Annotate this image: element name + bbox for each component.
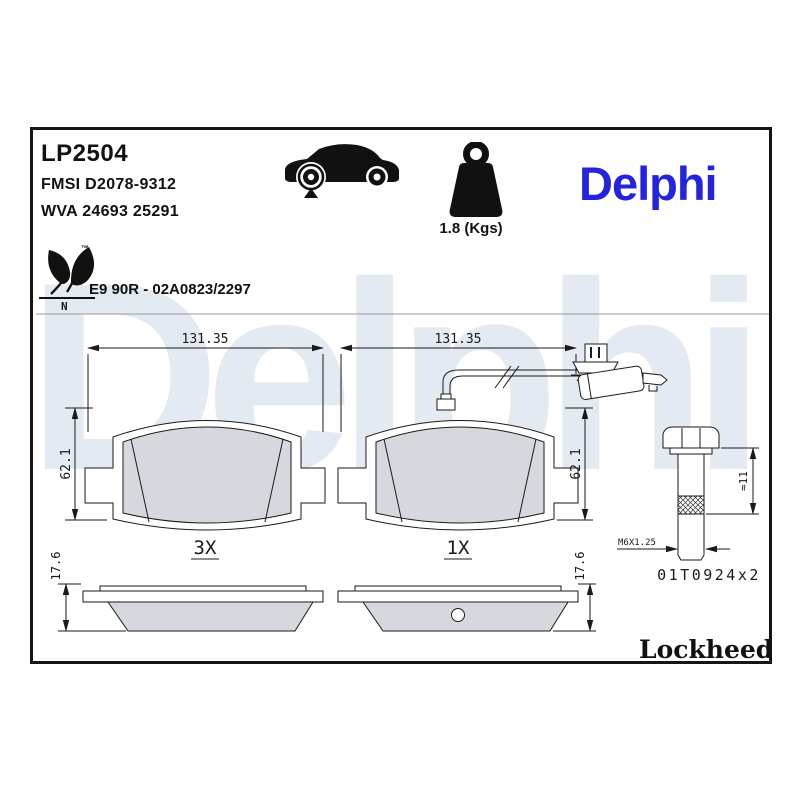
wva-reference: WVA 24693 25291 bbox=[41, 203, 179, 221]
datasheet-page: Delphi LP2504 FMSI D2078-9312 WVA 24693 … bbox=[0, 0, 800, 800]
pad1-width-dim: 131.35 bbox=[182, 332, 229, 347]
bolt-ref-number: 01T0924x2 bbox=[657, 566, 761, 584]
weight-icon bbox=[439, 142, 513, 220]
pad1-height-dim: 62.1 bbox=[59, 448, 74, 479]
eco-mark: N bbox=[61, 300, 68, 312]
pad2-height-dim: 62.1 bbox=[569, 448, 584, 479]
wear-sensor bbox=[437, 344, 667, 410]
bolt-length-dim: ≈11 bbox=[737, 471, 750, 491]
main-border-box: Delphi LP2504 FMSI D2078-9312 WVA 24693 … bbox=[30, 127, 772, 664]
part-number: LP2504 bbox=[41, 140, 128, 168]
eco-leaf-icon: N bbox=[37, 242, 99, 312]
weight-value: 1.8 (Kgs) bbox=[423, 220, 519, 237]
approval-number: E9 90R - 02A0823/2297 bbox=[89, 281, 251, 298]
bolt-thread-label: M6X1.25 bbox=[618, 538, 656, 548]
pad2-qty-label: 1X bbox=[447, 537, 470, 559]
lockheed-text: Lockheed bbox=[639, 635, 772, 664]
fmsi-reference: FMSI D2078-9312 bbox=[41, 176, 176, 194]
pad1-qty-label: 3X bbox=[194, 537, 217, 559]
brand-logo: Delphi bbox=[579, 156, 717, 211]
pad2-width-dim: 131.35 bbox=[435, 332, 482, 347]
pad2-thickness-dim: 17.6 bbox=[573, 552, 587, 581]
pad1-thickness-dim: 17.6 bbox=[49, 552, 63, 581]
car-icon bbox=[281, 138, 403, 200]
lockheed-logo: Lockheed® bbox=[639, 635, 772, 664]
